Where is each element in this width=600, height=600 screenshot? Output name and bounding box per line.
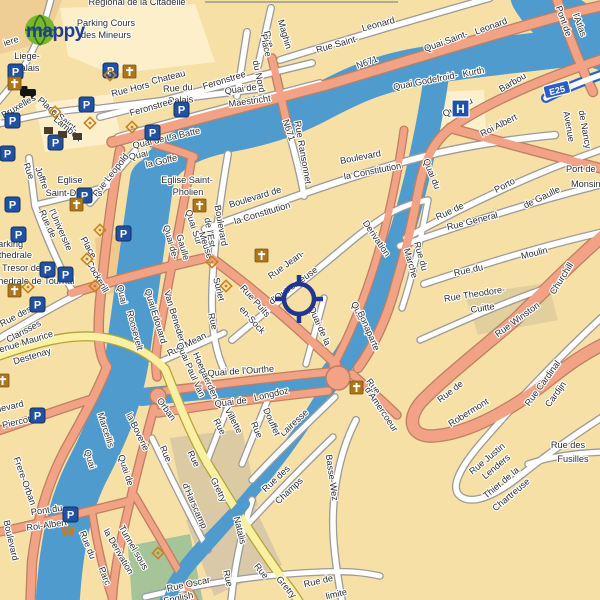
- monument-dot: [27, 286, 30, 289]
- cross-h: [11, 288, 18, 290]
- phone-icon: ☎: [60, 525, 76, 540]
- street-label: Cathedrale: [0, 250, 32, 260]
- street-label: Rue des: [551, 440, 586, 450]
- cross-v: [2, 376, 4, 385]
- street-label: s: [98, 188, 103, 198]
- mappy-logo-text: mappy: [26, 21, 86, 42]
- street-label: Rue du: [163, 82, 193, 94]
- parking-letter: P: [178, 105, 185, 117]
- cross-v: [199, 201, 201, 210]
- map-viewport: Regional de la CitadelleiereParking Cour…: [0, 0, 600, 600]
- mappy-logo[interactable]: mappy: [8, 4, 118, 52]
- wheel: [23, 95, 26, 98]
- parking-letter: P: [9, 200, 16, 212]
- street-label: Quai de: [116, 453, 135, 487]
- street-label: Maghin: [276, 18, 294, 50]
- parking-icon[interactable]: P: [145, 125, 160, 140]
- parking-icon[interactable]: P: [79, 97, 94, 112]
- cross-h: [73, 202, 80, 204]
- church-icon: [0, 374, 9, 387]
- parking-letter: P: [4, 149, 11, 161]
- street-label: Boulevard: [339, 148, 382, 166]
- street-label: Pholien: [173, 187, 204, 197]
- wheel: [31, 95, 34, 98]
- parking-icon[interactable]: P: [5, 197, 20, 212]
- parking-icon[interactable]: P: [11, 227, 26, 242]
- parking-letter: P: [34, 411, 41, 423]
- parking-letter: P: [62, 270, 69, 282]
- street-label: Saint-D: [46, 188, 77, 198]
- cross-h: [126, 69, 133, 71]
- monument-dot: [225, 285, 228, 288]
- monument-dot: [131, 126, 134, 129]
- building-icon: [58, 131, 67, 138]
- parking-letter: P: [83, 100, 90, 112]
- church-icon: [8, 77, 21, 90]
- street-label: Moulin: [520, 245, 549, 261]
- street-label: Avenue: [561, 110, 576, 142]
- cross-h: [353, 385, 360, 387]
- street-label: Boulevard: [0, 399, 25, 418]
- street-label: Rue: [206, 312, 220, 331]
- train-body: [20, 89, 36, 96]
- church-icon: [8, 284, 21, 297]
- cross-v: [14, 286, 16, 295]
- map-canvas[interactable]: Regional de la CitadelleiereParking Cour…: [0, 0, 600, 600]
- church-icon: [123, 65, 136, 78]
- monument-dot: [94, 285, 97, 288]
- street-label: Eglise: [57, 175, 82, 185]
- monument-dot: [211, 261, 214, 264]
- street-label: Fusilles: [557, 454, 589, 464]
- church-icon: [70, 198, 83, 211]
- street-label: Frere-Orban: [11, 456, 38, 507]
- street-label: Eglise Saint-: [161, 175, 213, 185]
- monument-dot: [86, 258, 89, 261]
- cross-v: [129, 67, 131, 76]
- building-icon: [73, 133, 82, 140]
- parking-letter: P: [9, 116, 16, 128]
- parking-icon[interactable]: P: [0, 146, 15, 161]
- building-icon: [44, 127, 53, 134]
- parking-icon[interactable]: P: [116, 226, 131, 241]
- parking-icon[interactable]: P: [40, 262, 55, 277]
- monument-dot: [157, 552, 160, 555]
- street-label: de Nancy: [577, 109, 594, 149]
- street-label: Parc: [97, 565, 114, 587]
- parking-letter: P: [67, 510, 74, 522]
- parking-letter: P: [120, 229, 127, 241]
- church-icon: [350, 381, 363, 394]
- train-cab: [22, 86, 28, 90]
- church-icon: [193, 199, 206, 212]
- street-label: Rue Hors: [110, 79, 150, 98]
- monument-dot: [109, 74, 112, 77]
- hospital-icon: H: [452, 100, 469, 117]
- monument-dot: [54, 111, 57, 114]
- monument-dot: [89, 122, 92, 125]
- cross-v: [14, 79, 16, 88]
- street-label: Port de: [566, 164, 596, 174]
- parking-icon[interactable]: P: [30, 408, 45, 423]
- cross-v: [356, 383, 358, 392]
- parking-letter: P: [15, 230, 22, 242]
- street-label: Rue du: [453, 262, 484, 278]
- parking-icon[interactable]: P: [30, 297, 45, 312]
- phone-glyph: ☎: [60, 525, 76, 540]
- cross-v: [76, 200, 78, 209]
- parking-letter: P: [149, 128, 156, 140]
- cross-h: [11, 81, 18, 83]
- cross-h: [196, 203, 203, 205]
- parking-icon[interactable]: P: [63, 507, 78, 522]
- street-label: Liege-: [14, 51, 40, 61]
- parking-icon[interactable]: P: [58, 267, 73, 282]
- parking-icon[interactable]: P: [5, 113, 20, 128]
- street-label: Rue Saint-: [315, 33, 359, 55]
- church-box: [0, 374, 9, 387]
- church-icon: [255, 249, 268, 262]
- street-label: Monsin: [571, 179, 600, 189]
- road-junction: [326, 366, 350, 390]
- cross-h: [258, 253, 265, 255]
- parking-icon[interactable]: P: [174, 102, 189, 117]
- cross-h: [0, 378, 6, 380]
- parking-letter: P: [34, 300, 41, 312]
- parking-letter: P: [52, 138, 59, 150]
- monument-dot: [99, 229, 102, 232]
- hospital-letter: H: [456, 102, 465, 116]
- parking-letter: P: [44, 265, 51, 277]
- cross-v: [261, 251, 263, 260]
